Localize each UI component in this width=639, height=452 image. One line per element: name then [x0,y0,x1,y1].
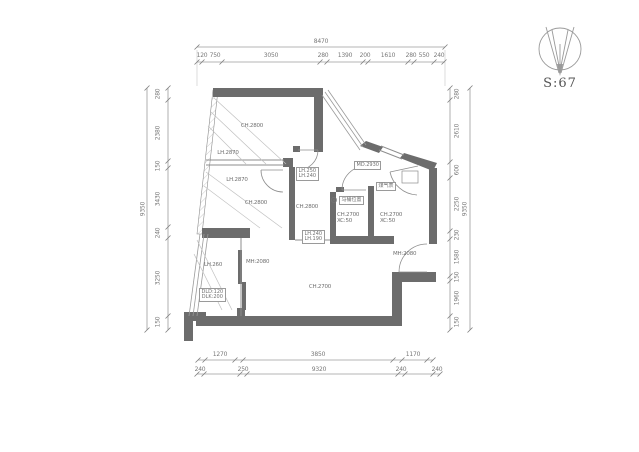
scale-label: S:67 [543,76,577,91]
compass-icon [539,27,581,76]
dim-bottom-seg: 240 [432,366,443,373]
dim-top-seg: 750 [210,52,221,59]
dim-left-seg: 240 [155,228,162,239]
dim-top-seg: 200 [360,52,371,59]
dim-left-seg: 150 [155,161,162,172]
balcony-note-box: DLD:120 DLK:200 [199,288,226,302]
gas-meter-label: 煤气表 [379,184,394,190]
dim-top-seg: 240 [434,52,445,59]
dim-right-seg: 1960 [454,291,461,305]
floor-plan-drawing [0,0,639,452]
dim-left-seg: 150 [155,317,162,328]
bathroom-ceiling-label: CH.2700 XC:50 [337,212,359,224]
dim-bottom-seg: 1170 [406,351,420,358]
hall-sill-line2: LH.240 [299,174,317,180]
kitchen-ceiling-label: CH.2700 XC:50 [380,212,402,224]
dim-left-seg: 2380 [155,126,162,140]
bedroom2-ceiling-label: CH.2800 [245,200,267,206]
dim-top-seg: 550 [419,52,430,59]
hall-sill-box: LH.250 LH.240 [296,167,319,181]
dim-top-seg: 120 [197,52,208,59]
dim-right-seg: 2250 [454,197,461,211]
gas-meter-symbol [402,171,418,183]
dim-top-seg: 280 [318,52,329,59]
dim-top-seg: 3050 [264,52,278,59]
dim-right-seg: 600 [454,165,461,176]
dim-left-seg: 3250 [155,271,162,285]
bedroom1-ceiling-label: CH.2800 [241,123,263,129]
gas-meter-box: 煤气表 [376,182,396,191]
living-ceiling-label: CH.2700 [309,284,331,290]
bedroom1-beam-label: LH.2870 [217,150,238,156]
hall-ceiling-label: CH.2800 [296,204,318,210]
dim-bottom-seg: 3850 [311,351,325,358]
bathroom-xc: XC:50 [337,218,359,224]
dim-right-seg: 230 [454,230,461,241]
entry-door-label: MD.2930 [357,163,379,169]
hall-threshold-box: LH.240 LH.190 [302,230,325,244]
dim-bottom-seg: 240 [195,366,206,373]
dim-left-seg: 3430 [155,192,162,206]
bedroom2-beam-label: LH.2870 [226,177,247,183]
dim-left-overall: 9350 [140,202,147,216]
dim-bottom-seg: 1270 [213,351,227,358]
entry-door-box: MD.2930 [354,161,381,170]
dim-top-seg: 1610 [381,52,395,59]
hall-threshold-line2: LH.190 [305,237,323,243]
dim-bottom-seg: 250 [238,366,249,373]
dim-right-seg: 150 [454,317,461,328]
balcony-sill-label: LH.260 [204,262,222,268]
balcony-note2: DLK:200 [202,295,224,301]
dim-bottom-seg: 240 [396,366,407,373]
dim-left-seg: 280 [155,89,162,100]
sliding-door-label: MH:2080 [246,259,269,265]
dim-top-seg: 280 [406,52,417,59]
dim-right-seg: 2610 [454,124,461,138]
dim-right-seg: 150 [454,272,461,283]
dim-right-seg: 280 [454,89,461,100]
dim-bottom-overall: 9320 [312,366,326,373]
slanted-wall-hatch [197,90,218,234]
toilet-position-box: 马桶位置 [339,196,364,205]
dim-right-overall: 9350 [462,202,469,216]
toilet-position-label: 马桶位置 [342,198,362,204]
dim-right-seg: 1580 [454,250,461,264]
dim-top-overall: 8470 [314,38,328,45]
exit-door-label: MH:2080 [393,251,416,257]
dim-top-seg: 1390 [338,52,352,59]
kitchen-xc: XC:50 [380,218,402,224]
floor-plan-page: 8470 120 750 3050 280 1390 200 1610 280 … [0,0,639,452]
